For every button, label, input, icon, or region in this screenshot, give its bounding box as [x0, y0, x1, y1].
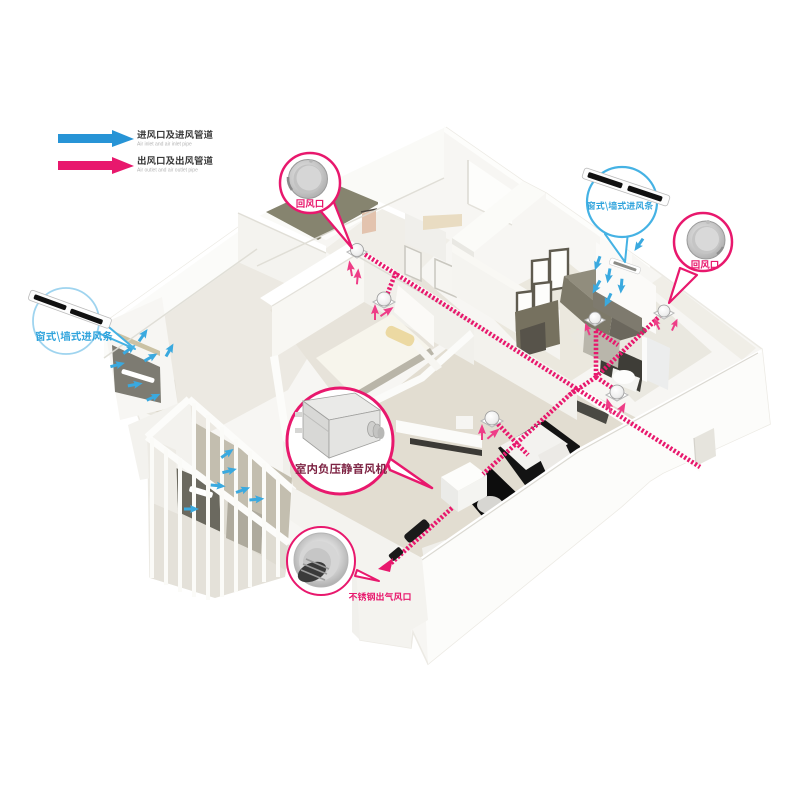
svg-text:Air outlet and air outlet pipe: Air outlet and air outlet pipe	[137, 168, 198, 174]
svg-text:Air inlet and air inlet pipe: Air inlet and air inlet pipe	[137, 142, 192, 148]
